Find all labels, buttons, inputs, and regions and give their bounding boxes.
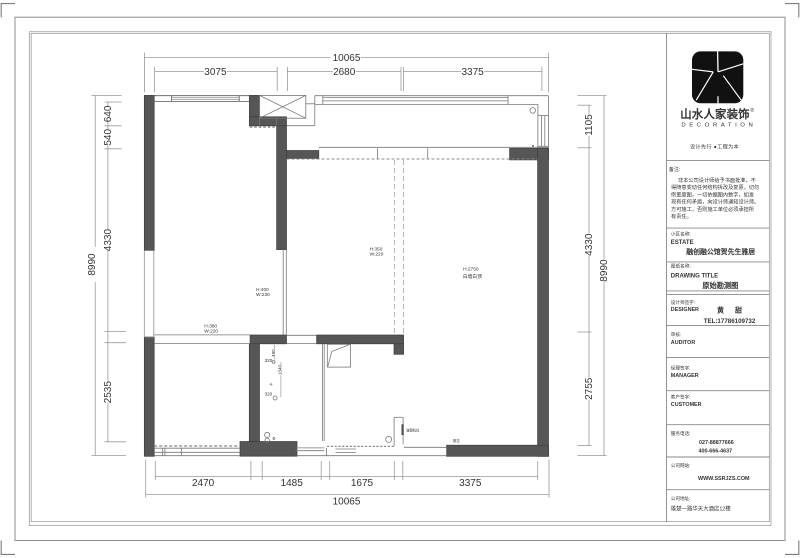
svg-text:320: 320 bbox=[265, 358, 273, 363]
svg-text:DESIGNER: DESIGNER bbox=[671, 307, 699, 313]
svg-text:山水人家装饰: 山水人家装饰 bbox=[680, 107, 750, 121]
svg-text:640: 640 bbox=[103, 105, 114, 122]
svg-text:经理签字:: 经理签字: bbox=[671, 365, 691, 371]
svg-text:W:220: W:220 bbox=[370, 251, 384, 257]
svg-text:3375: 3375 bbox=[461, 67, 484, 78]
svg-text:10065: 10065 bbox=[333, 53, 361, 64]
svg-text:TEL:17786109732: TEL:17786109732 bbox=[704, 318, 756, 325]
svg-text:图纸名称:: 图纸名称: bbox=[671, 262, 691, 269]
svg-text:1105: 1105 bbox=[584, 114, 595, 136]
svg-text:方可施工，否则施工单位必须承担所: 方可施工，否则施工单位必须承担所 bbox=[671, 205, 754, 213]
svg-text:CUSTOMER: CUSTOMER bbox=[671, 402, 702, 408]
svg-text:雄楚一路华天大酒店12楼: 雄楚一路华天大酒店12楼 bbox=[671, 504, 732, 512]
svg-text:原始勘测图: 原始勘测图 bbox=[702, 281, 738, 290]
svg-text:8990: 8990 bbox=[87, 253, 98, 276]
svg-text:DRAWING TITLE: DRAWING TITLE bbox=[671, 274, 718, 280]
svg-text:1675: 1675 bbox=[351, 478, 374, 489]
svg-text:油烟机位: 油烟机位 bbox=[406, 428, 420, 433]
svg-text:10065: 10065 bbox=[333, 496, 361, 507]
svg-text:现有任何矛盾，向设计师通知设计师。: 现有任何矛盾，向设计师通知设计师。 bbox=[671, 198, 759, 206]
svg-text:公司地址:: 公司地址: bbox=[671, 495, 691, 501]
svg-text:WWW.SSRJZS.COM: WWW.SSRJZS.COM bbox=[698, 476, 750, 482]
svg-text:1485: 1485 bbox=[281, 478, 304, 489]
svg-text:例量度图，一切依据图内数字，如发: 例量度图，一切依据图内数字，如发 bbox=[671, 190, 754, 198]
svg-text:备注:: 备注: bbox=[669, 166, 680, 173]
svg-text:审核:: 审核: bbox=[671, 331, 681, 338]
svg-text:W:220: W:220 bbox=[204, 329, 218, 335]
svg-text:2755: 2755 bbox=[584, 377, 595, 400]
svg-text:小区名称:: 小区名称: bbox=[671, 231, 691, 238]
svg-text:ESTATE: ESTATE bbox=[671, 240, 694, 246]
svg-text:MANAGER: MANAGER bbox=[671, 373, 699, 379]
svg-text:400-666-4637: 400-666-4637 bbox=[699, 448, 733, 454]
svg-text:客户签字:: 客户签字: bbox=[671, 394, 691, 401]
svg-text:融创融公馆贺先生雅居: 融创融公馆贺先生雅居 bbox=[686, 247, 755, 256]
svg-text:DECORATION: DECORATION bbox=[681, 123, 756, 129]
svg-text:设计师签字:: 设计师签字: bbox=[671, 299, 695, 306]
svg-text:3375: 3375 bbox=[459, 478, 482, 489]
svg-text:2535: 2535 bbox=[103, 381, 114, 404]
svg-text:540: 540 bbox=[103, 129, 114, 146]
svg-text:服务电话:: 服务电话: bbox=[671, 430, 691, 437]
svg-text:490: 490 bbox=[271, 349, 276, 357]
svg-text:4330: 4330 bbox=[103, 229, 114, 252]
svg-text:设计先行 ●工程为本: 设计先行 ●工程为本 bbox=[690, 143, 739, 151]
svg-text:AUDITOR: AUDITOR bbox=[671, 340, 696, 346]
svg-text:®: ® bbox=[751, 107, 755, 114]
svg-text:320: 320 bbox=[265, 392, 273, 397]
svg-text:公司网站:: 公司网站: bbox=[671, 462, 691, 469]
svg-text:027-88877666: 027-88877666 bbox=[699, 440, 734, 446]
svg-text:黄甜: 黄甜 bbox=[717, 306, 753, 315]
svg-text:1340: 1340 bbox=[277, 364, 282, 375]
svg-text:4330: 4330 bbox=[584, 233, 595, 256]
svg-text:白墙白顶: 白墙白顶 bbox=[463, 273, 482, 280]
svg-text:得随意变动任何结构拆改及复原，切勿: 得随意变动任何结构拆改及复原，切勿 bbox=[671, 183, 759, 191]
svg-text:2680: 2680 bbox=[333, 67, 356, 78]
svg-text:W:230: W:230 bbox=[256, 292, 270, 298]
svg-text:8990: 8990 bbox=[599, 259, 610, 282]
svg-text:H:2750: H:2750 bbox=[463, 266, 479, 272]
svg-text:非本公司设计师给予书面批准，不: 非本公司设计师给予书面批准，不 bbox=[678, 176, 756, 184]
svg-text:3075: 3075 bbox=[204, 67, 227, 78]
svg-text:2470: 2470 bbox=[192, 478, 215, 489]
svg-text:有责任。: 有责任。 bbox=[671, 212, 692, 220]
svg-text:推拉: 推拉 bbox=[453, 438, 460, 443]
